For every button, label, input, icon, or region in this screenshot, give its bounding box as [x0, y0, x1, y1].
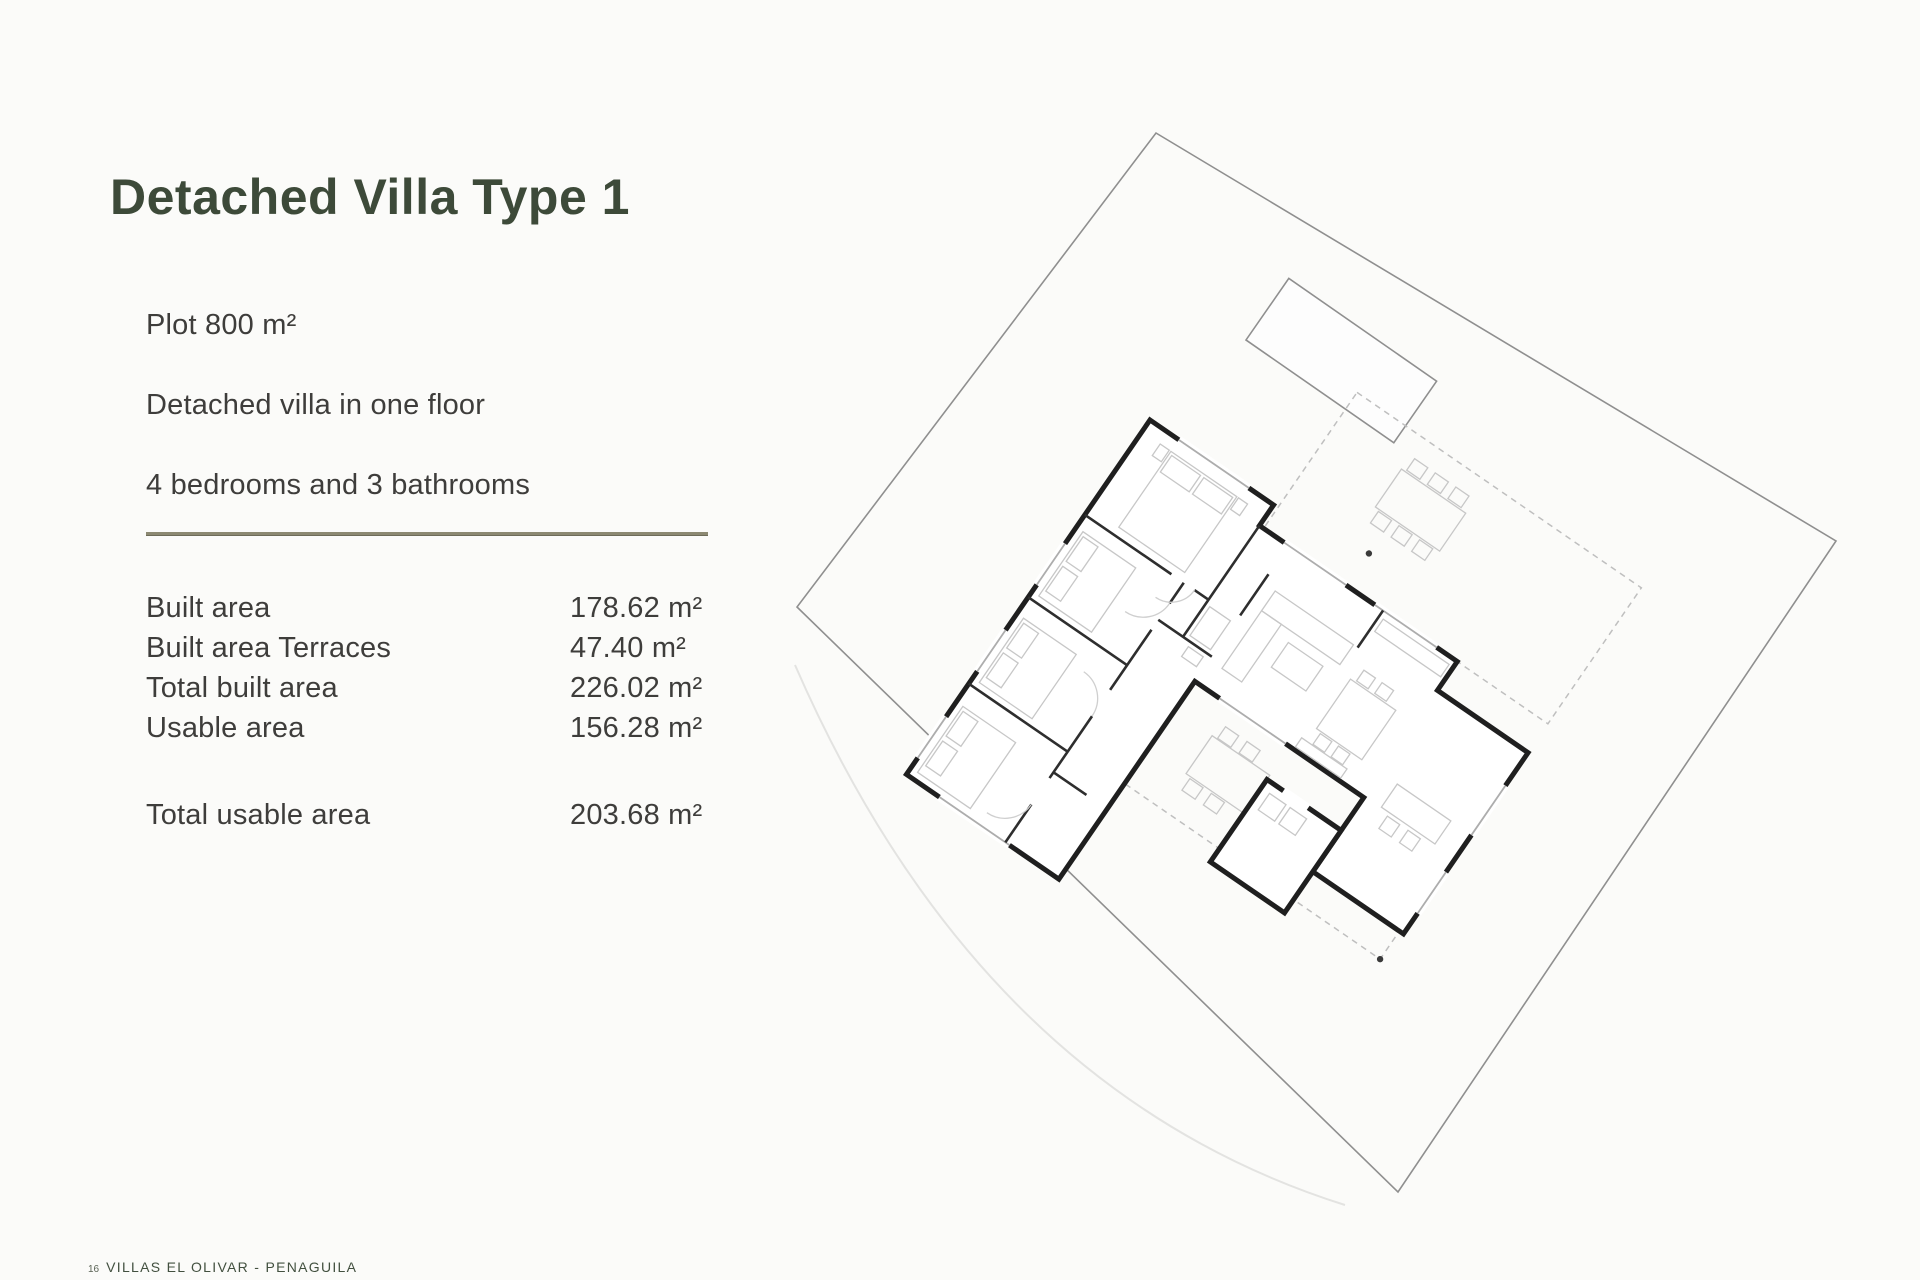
swimming-pool	[1246, 278, 1437, 442]
survey-dot	[1364, 549, 1373, 558]
villa-group	[906, 305, 1641, 1058]
survey-dot	[1376, 955, 1385, 964]
brochure-page: Detached Villa Type 1 Plot 800 m² Detach…	[0, 0, 1920, 1280]
floor-plan	[0, 0, 1920, 1280]
